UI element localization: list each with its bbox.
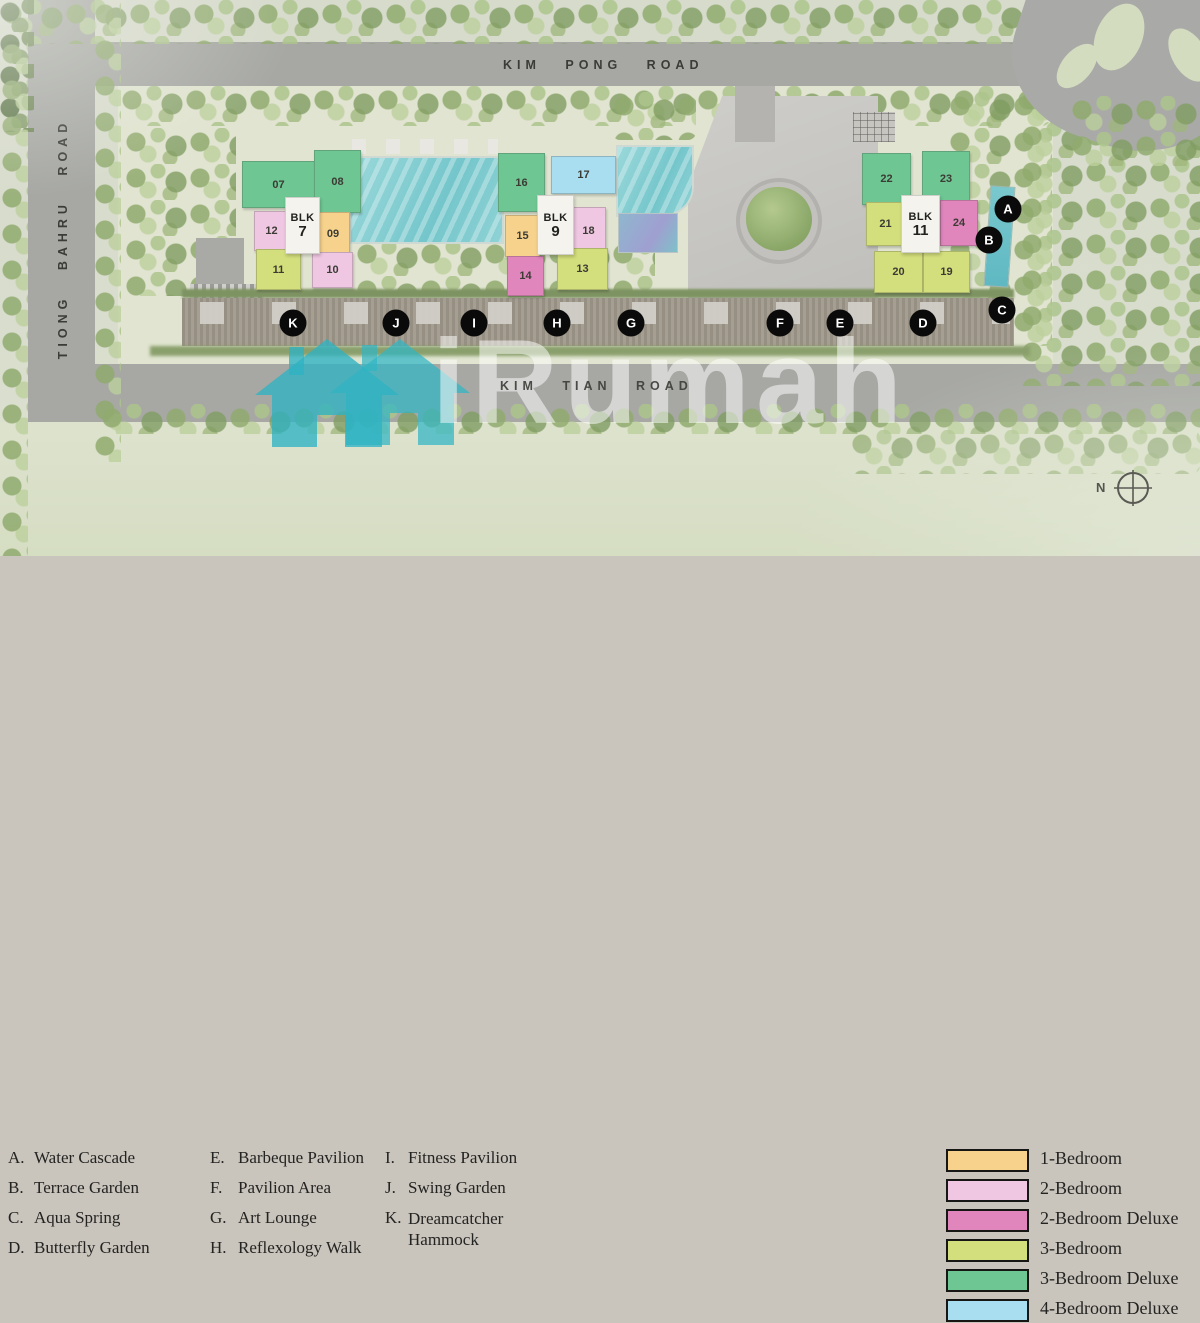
facility-label: Barbeque Pavilion bbox=[238, 1148, 364, 1168]
unit-type-swatch bbox=[946, 1239, 1029, 1262]
marker-J: J bbox=[383, 310, 410, 337]
lap-pool bbox=[349, 156, 504, 244]
legend-facility-row: G. Art Lounge bbox=[210, 1208, 380, 1234]
facility-key: A. bbox=[8, 1148, 25, 1168]
unit-number: 15 bbox=[516, 230, 528, 242]
marker-I: I bbox=[461, 310, 488, 337]
unit-type-label: 2-Bedroom bbox=[1040, 1178, 1122, 1199]
legend-facility-row: I. Fitness Pavilion bbox=[385, 1148, 545, 1174]
unit-type-swatch bbox=[946, 1149, 1029, 1172]
facility-key: J. bbox=[385, 1178, 396, 1198]
facility-label: Reflexology Walk bbox=[238, 1238, 361, 1258]
unit-type-row: 4-Bedroom Deluxe bbox=[940, 1299, 1200, 1323]
marker-K: K bbox=[280, 310, 307, 337]
tree-row-north-boundary bbox=[120, 86, 1050, 126]
unit-number: 22 bbox=[880, 173, 892, 185]
unit-number: 17 bbox=[577, 169, 589, 181]
unit-type-swatch bbox=[946, 1209, 1029, 1232]
unit-type-row: 2-Bedroom Deluxe bbox=[940, 1209, 1200, 1233]
legend-facility-row: H. Reflexology Walk bbox=[210, 1238, 380, 1264]
marker-E: E bbox=[827, 310, 854, 337]
unit-20: 20 bbox=[874, 251, 923, 293]
legend-facility-row: C. Aqua Spring bbox=[8, 1208, 188, 1234]
unit-type-row: 3-Bedroom Deluxe bbox=[940, 1269, 1200, 1293]
block-word: BLK bbox=[908, 211, 932, 223]
site-plan-map: 07 08 12 09 11 10 BLK 7 16 17 15 18 14 1… bbox=[0, 0, 1200, 556]
facility-key: H. bbox=[210, 1238, 227, 1258]
facility-key: B. bbox=[8, 1178, 24, 1198]
facility-label: Aqua Spring bbox=[34, 1208, 120, 1228]
legend-facility-row: A. Water Cascade bbox=[8, 1148, 188, 1174]
legend-facility-row: E. Barbeque Pavilion bbox=[210, 1148, 380, 1174]
facility-key: C. bbox=[8, 1208, 24, 1228]
block-word: BLK bbox=[543, 212, 567, 224]
unit-type-swatch bbox=[946, 1179, 1029, 1202]
marker-D: D bbox=[910, 310, 937, 337]
unit-number: 21 bbox=[879, 218, 891, 230]
facility-key: G. bbox=[210, 1208, 227, 1228]
unit-number: 13 bbox=[576, 263, 588, 275]
unit-08: 08 bbox=[314, 150, 361, 213]
unit-type-row: 1-Bedroom bbox=[940, 1149, 1200, 1173]
facility-key: K. bbox=[385, 1208, 402, 1228]
legend-facility-row: B. Terrace Garden bbox=[8, 1178, 188, 1204]
facility-label: Water Cascade bbox=[34, 1148, 135, 1168]
unit-type-label: 1-Bedroom bbox=[1040, 1148, 1122, 1169]
block-number: 7 bbox=[298, 224, 306, 239]
unit-09: 09 bbox=[316, 212, 350, 256]
compass: N bbox=[1090, 468, 1170, 510]
unit-type-label: 4-Bedroom Deluxe bbox=[1040, 1298, 1178, 1319]
block-number: 9 bbox=[551, 224, 559, 239]
legend-panel: A. Water Cascade B. Terrace Garden C. Aq… bbox=[0, 556, 1200, 788]
pool-cabanas bbox=[352, 139, 498, 154]
facility-key: F. bbox=[210, 1178, 222, 1198]
tree-cluster-top-mid bbox=[612, 92, 696, 140]
facility-label: Pavilion Area bbox=[238, 1178, 331, 1198]
unit-number: 16 bbox=[515, 177, 527, 189]
unit-number: 24 bbox=[953, 217, 965, 229]
facility-key: E. bbox=[210, 1148, 225, 1168]
marker-F: F bbox=[767, 310, 794, 337]
facility-label: Swing Garden bbox=[408, 1178, 506, 1198]
marker-H: H bbox=[544, 310, 571, 337]
marker-A: A bbox=[995, 196, 1022, 223]
plaza-feature-tree bbox=[746, 187, 812, 251]
unit-number: 08 bbox=[331, 176, 343, 188]
unit-type-label: 3-Bedroom Deluxe bbox=[1040, 1268, 1178, 1289]
kim-tian-road-label: KIM TIAN ROAD bbox=[500, 379, 693, 393]
unit-number: 20 bbox=[892, 266, 904, 278]
unit-type-swatch bbox=[946, 1299, 1029, 1322]
unit-type-label: 2-Bedroom Deluxe bbox=[1040, 1208, 1178, 1229]
legend-facility-row: K. Dreamcatcher Hammock bbox=[385, 1208, 530, 1256]
unit-number: 18 bbox=[582, 225, 594, 237]
unit-number: 23 bbox=[940, 173, 952, 185]
unit-number: 07 bbox=[272, 179, 284, 191]
tree-cluster-top-right bbox=[1070, 96, 1200, 166]
tree-row-east-verge bbox=[93, 0, 121, 462]
facility-key: I. bbox=[385, 1148, 395, 1168]
marker-C: C bbox=[989, 297, 1016, 324]
legend-facility-row: D. Butterfly Garden bbox=[8, 1238, 188, 1264]
unit-number: 19 bbox=[940, 266, 952, 278]
unit-number: 11 bbox=[273, 264, 285, 276]
block-9-label: BLK 9 bbox=[537, 195, 574, 255]
unit-number: 09 bbox=[327, 228, 339, 240]
unit-type-label: 3-Bedroom bbox=[1040, 1238, 1122, 1259]
compass-icon bbox=[1112, 468, 1156, 510]
facility-label: Dreamcatcher Hammock bbox=[408, 1208, 523, 1250]
unit-number: 14 bbox=[519, 270, 531, 282]
unit-14: 14 bbox=[507, 256, 544, 296]
maze-garden bbox=[853, 112, 895, 142]
marker-B: B bbox=[976, 227, 1003, 254]
unit-17: 17 bbox=[551, 156, 616, 194]
block-number: 11 bbox=[913, 223, 929, 238]
unit-19: 19 bbox=[923, 251, 970, 293]
tiong-bahru-road-label: TIONG BAHRU ROAD bbox=[56, 79, 70, 399]
facility-label: Fitness Pavilion bbox=[408, 1148, 517, 1168]
facility-label: Art Lounge bbox=[238, 1208, 317, 1228]
facility-label: Terrace Garden bbox=[34, 1178, 139, 1198]
unit-number: 10 bbox=[326, 264, 338, 276]
legend-facility-row: F. Pavilion Area bbox=[210, 1178, 380, 1204]
marker-G: G bbox=[618, 310, 645, 337]
unit-10: 10 bbox=[312, 252, 353, 288]
unit-18: 18 bbox=[571, 207, 606, 254]
facility-label: Butterfly Garden bbox=[34, 1238, 150, 1258]
unit-type-swatch bbox=[946, 1269, 1029, 1292]
compass-north-label: N bbox=[1096, 480, 1105, 495]
unit-11: 11 bbox=[256, 249, 301, 290]
kids-pool bbox=[618, 213, 678, 253]
facility-key: D. bbox=[8, 1238, 25, 1258]
unit-number: 12 bbox=[265, 225, 277, 237]
entrance-driveway bbox=[735, 86, 775, 142]
block-11-label: BLK 11 bbox=[901, 195, 940, 253]
kim-pong-road-label: KIM PONG ROAD bbox=[503, 58, 703, 72]
unit-21: 21 bbox=[866, 202, 905, 246]
unit-type-row: 2-Bedroom bbox=[940, 1179, 1200, 1203]
unit-24: 24 bbox=[940, 200, 978, 246]
legend-facility-row: J. Swing Garden bbox=[385, 1178, 545, 1204]
unit-15: 15 bbox=[505, 215, 540, 257]
unit-type-row: 3-Bedroom bbox=[940, 1239, 1200, 1263]
leisure-pool bbox=[616, 145, 694, 217]
tree-row-west-verge bbox=[0, 40, 28, 556]
unit-12: 12 bbox=[254, 211, 289, 251]
block-7-label: BLK 7 bbox=[285, 197, 320, 254]
